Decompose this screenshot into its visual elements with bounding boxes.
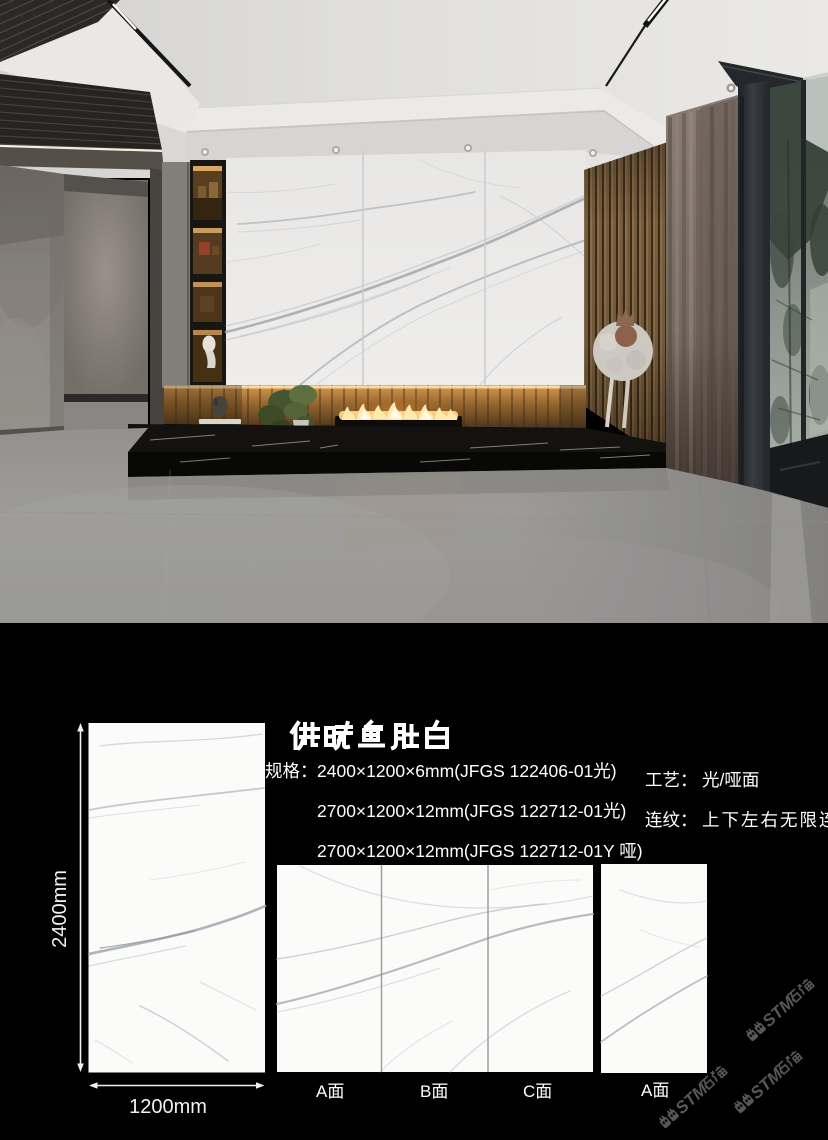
svg-text:1200mm: 1200mm — [129, 1096, 207, 1118]
svg-text:2400mm: 2400mm — [49, 870, 71, 948]
